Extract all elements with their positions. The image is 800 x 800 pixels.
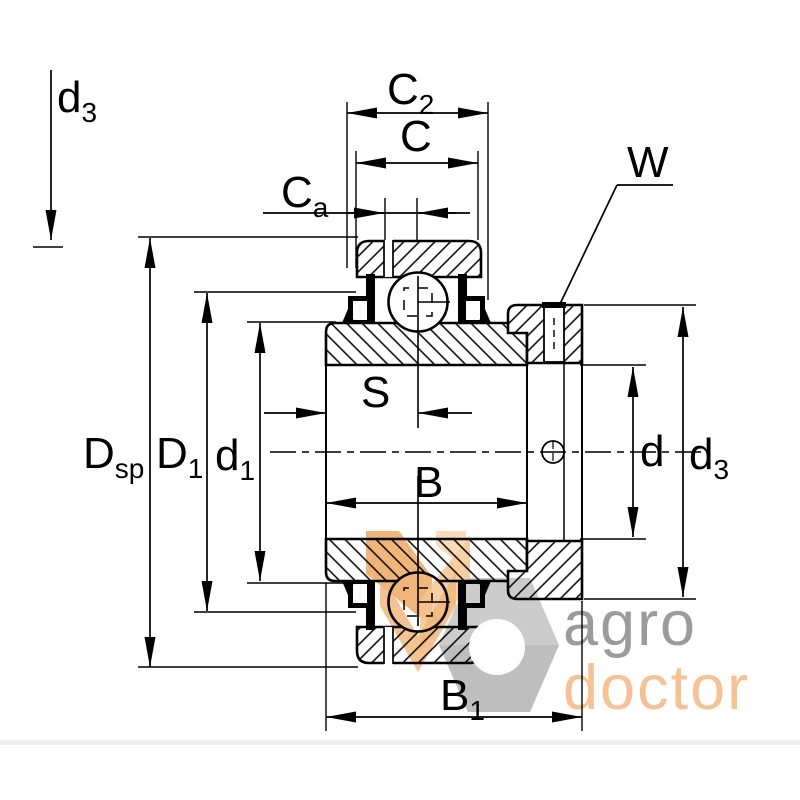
- bearing-technical-drawing: agro doctor: [0, 0, 800, 800]
- dim-label-c: C: [400, 112, 432, 161]
- watermark-edge-strip: [0, 740, 800, 745]
- lube-hole-top: [384, 239, 393, 277]
- hexagon-nut-hole: [469, 619, 525, 675]
- dim-label-w: W: [627, 138, 669, 187]
- dim-label-s: S: [361, 368, 390, 417]
- watermark-text-doctor: doctor: [563, 653, 750, 723]
- dim-label-b: B: [414, 458, 443, 507]
- dim-label-d: d: [640, 427, 664, 476]
- bearing-drawing-page: agro doctor: [0, 0, 800, 800]
- lube-hole-bottom: [384, 627, 393, 665]
- set-screw-head: [542, 302, 566, 308]
